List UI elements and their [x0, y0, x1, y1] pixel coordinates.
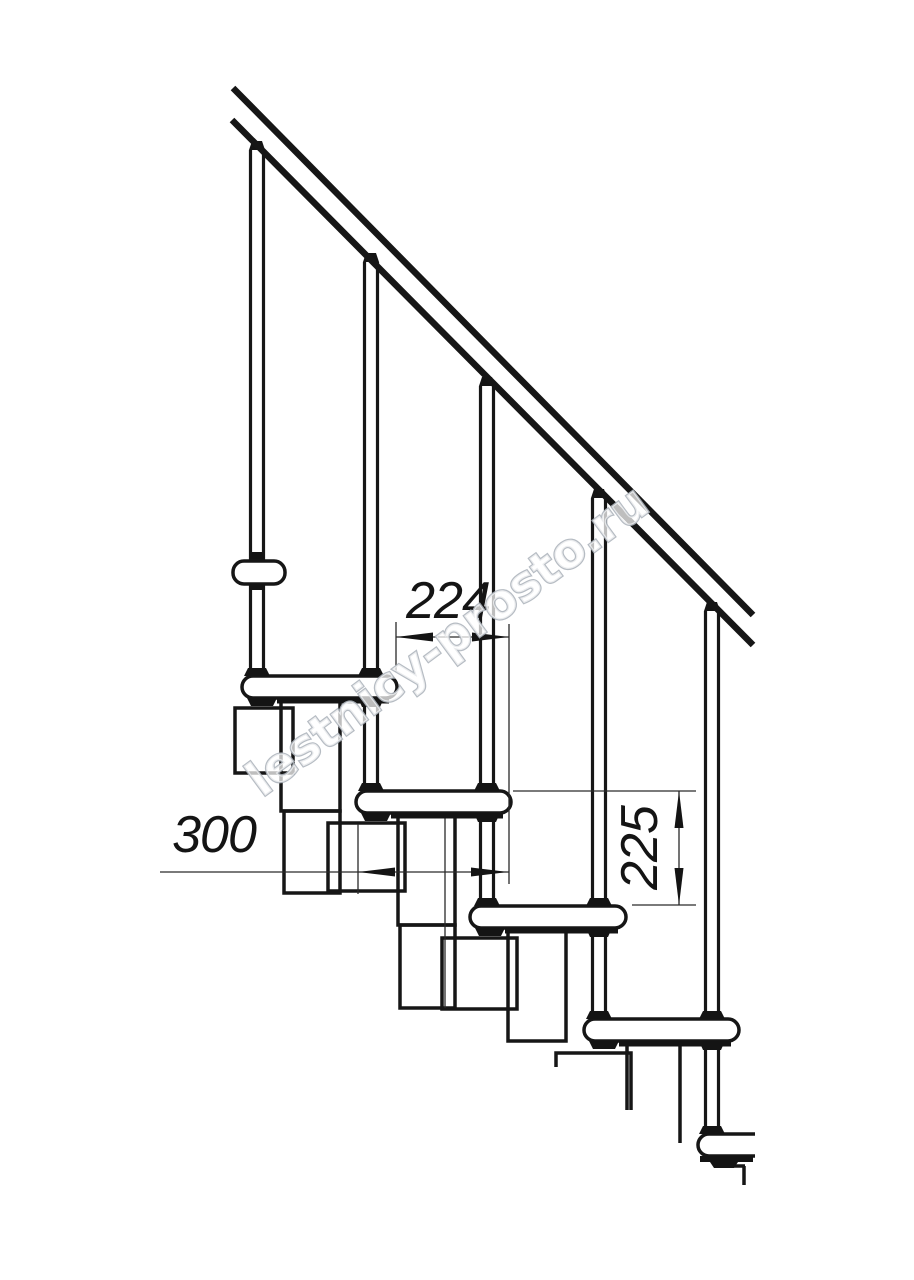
support-post-4	[699, 1041, 725, 1126]
tread-5-cutoff	[698, 1134, 755, 1156]
tread-3	[470, 906, 626, 928]
arrowhead-down	[675, 868, 684, 905]
support-post-2	[474, 813, 500, 898]
baluster-2	[363, 253, 379, 676]
tread-connector-wedge	[699, 1126, 725, 1134]
arrowhead-left	[358, 868, 395, 877]
staircase-technical-drawing: 224 300 225 lestnicy-prosto.ru	[0, 0, 914, 1280]
tread-4	[584, 1019, 739, 1041]
bracket-body	[233, 561, 285, 584]
tread-connector-wedge	[244, 668, 270, 676]
arrowhead-up	[675, 791, 684, 828]
module-stub-below-tread-5	[717, 1166, 745, 1185]
support-post-3	[586, 928, 612, 1011]
tread-connector-wedge	[699, 1011, 725, 1019]
tread-2	[356, 791, 511, 813]
dimension-label-225: 225	[611, 804, 669, 891]
baluster-1	[249, 141, 265, 676]
tread-connector-wedge	[474, 783, 500, 791]
dimension-label-300: 300	[172, 806, 257, 864]
baluster-bracket	[233, 552, 285, 590]
module-hook-box-4	[556, 1053, 631, 1110]
tread-connector-wedge	[358, 783, 384, 791]
watermark-text: lestnicy-prosto.ru	[236, 474, 659, 808]
tread-connector-wedge	[586, 898, 612, 906]
baluster-5	[704, 602, 720, 1019]
bracket-foot	[249, 584, 265, 590]
tread-connector-wedge	[474, 898, 500, 906]
arrowhead-right	[471, 868, 508, 877]
tread-connector-wedge	[586, 1011, 612, 1019]
module-upper-box-4	[627, 1042, 680, 1143]
